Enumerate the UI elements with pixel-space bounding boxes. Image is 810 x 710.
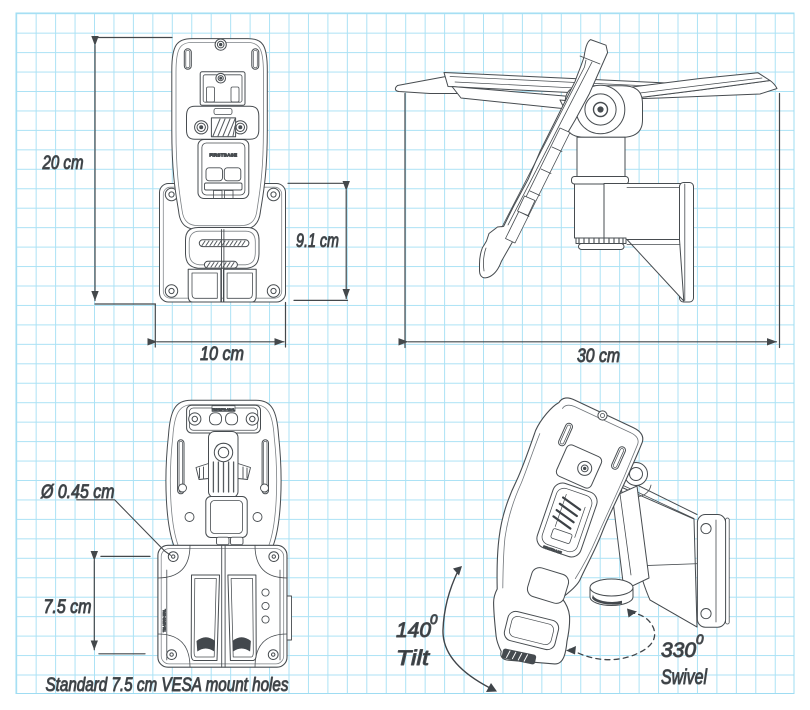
svg-text:10 cm: 10 cm bbox=[200, 344, 244, 365]
svg-text:Standard 7.5 cm VESA mount hol: Standard 7.5 cm VESA mount holes bbox=[46, 675, 289, 696]
svg-text:Tilt: Tilt bbox=[396, 647, 430, 670]
svg-text:30 cm: 30 cm bbox=[577, 346, 620, 367]
svg-text:330: 330 bbox=[661, 639, 696, 662]
svg-text:0: 0 bbox=[430, 612, 438, 627]
svg-text:TRIUMPH-ADAL: TRIUMPH-ADAL bbox=[212, 407, 235, 411]
svg-text:Swivel: Swivel bbox=[661, 666, 708, 689]
svg-text:140: 140 bbox=[396, 619, 431, 642]
svg-text:FIRSTBASE: FIRSTBASE bbox=[209, 153, 237, 158]
svg-text:Ø 0.45 cm: Ø 0.45 cm bbox=[40, 482, 114, 503]
svg-text:0: 0 bbox=[696, 632, 704, 647]
svg-text:7.5 cm: 7.5 cm bbox=[44, 597, 92, 618]
svg-text:TM-ABVD-WAL: TM-ABVD-WAL bbox=[163, 609, 167, 632]
svg-text:20 cm: 20 cm bbox=[42, 153, 84, 174]
svg-text:9.1 cm: 9.1 cm bbox=[296, 231, 339, 252]
